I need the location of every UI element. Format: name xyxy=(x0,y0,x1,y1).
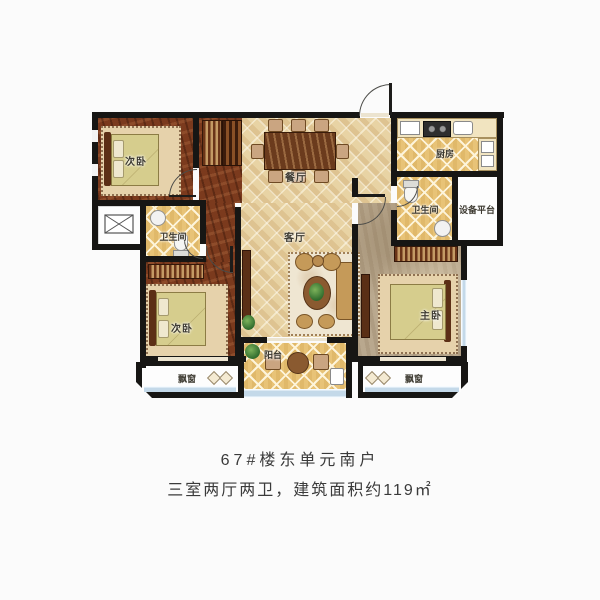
washbasin-icon xyxy=(150,210,166,226)
dining-chair xyxy=(314,119,329,132)
bay-opening-sill xyxy=(380,357,446,361)
wall-window-notch xyxy=(92,130,98,142)
entry-door-leaf xyxy=(389,83,392,115)
washing-machine-icon xyxy=(330,368,344,385)
wall xyxy=(98,200,206,206)
balcony-window xyxy=(244,389,346,398)
armchair xyxy=(322,253,341,271)
dining-chair xyxy=(291,119,306,132)
room-label-bay-window-left: 飘窗 xyxy=(160,372,214,385)
dining-chair xyxy=(336,144,349,159)
wall xyxy=(193,112,199,168)
wall xyxy=(241,337,267,343)
pillow xyxy=(158,298,169,316)
wall xyxy=(140,244,146,368)
floor-plan-page: 次卧 卫生间 次卧 餐厅 客厅 厨房 卫生间 设备平台 主卧 阳台 飘窗 飘窗 … xyxy=(0,0,600,600)
ottoman xyxy=(318,314,335,329)
balcony-chair xyxy=(313,354,329,370)
foyer-cabinet xyxy=(222,120,242,166)
room-label-bedroom-bottom-left: 次卧 xyxy=(155,320,209,335)
dining-chair xyxy=(268,119,283,132)
kitchen-sink-icon xyxy=(453,121,473,135)
bedroom2-door-leaf xyxy=(230,246,233,272)
wall xyxy=(391,177,397,186)
bay-opening-sill xyxy=(158,357,228,361)
room-label-dining-room: 餐厅 xyxy=(269,169,323,184)
room-label-living-room: 客厅 xyxy=(268,229,322,244)
ottoman xyxy=(296,314,313,329)
wall xyxy=(391,240,503,246)
pillow xyxy=(432,288,443,308)
table-plant-icon xyxy=(309,283,324,301)
side-table xyxy=(312,255,324,267)
master-wardrobe xyxy=(394,246,458,262)
entry-door-arc xyxy=(359,84,391,116)
bed-headboard xyxy=(149,290,156,346)
wall xyxy=(391,171,503,177)
tv-cabinet xyxy=(242,250,251,320)
wall xyxy=(327,337,346,343)
master-side-window xyxy=(461,280,467,346)
bay-window-right-glass xyxy=(365,386,459,392)
balcony-opening-sill xyxy=(267,338,327,341)
wall xyxy=(497,112,503,246)
coffee-table xyxy=(303,276,331,310)
master-door-leaf xyxy=(358,194,385,197)
wall-window-notch xyxy=(92,164,98,176)
washbasin-icon xyxy=(434,220,451,237)
stove-icon xyxy=(423,121,451,137)
room-label-master-bedroom: 主卧 xyxy=(404,307,458,322)
kitchen-basin xyxy=(481,141,494,153)
wall xyxy=(390,112,504,118)
bay-window-left-glass xyxy=(144,386,236,392)
room-label-kitchen: 厨房 xyxy=(418,147,472,160)
dining-table xyxy=(264,132,336,170)
wall xyxy=(461,240,467,280)
wall xyxy=(92,244,146,250)
master-dresser xyxy=(361,274,370,338)
caption-unit-details: 三室两厅两卫，建筑面积约119㎡ xyxy=(0,476,600,500)
wall xyxy=(92,112,360,118)
wall xyxy=(391,112,397,177)
room-label-equipment-platform: 设备平台 xyxy=(450,203,504,216)
shoe-cabinet xyxy=(202,120,222,166)
wall xyxy=(346,337,352,398)
room-label-bathroom-right: 卫生间 xyxy=(398,203,452,216)
shaft-x-icon xyxy=(104,214,134,234)
caption-unit-title: 67#楼东单元南户 xyxy=(0,446,600,470)
kitchen-basin xyxy=(481,155,494,167)
plant-icon xyxy=(242,315,255,330)
room-label-balcony: 阳台 xyxy=(246,348,300,361)
room-label-bedroom-top-left: 次卧 xyxy=(109,153,163,168)
wall xyxy=(200,206,206,244)
room-label-bathroom-left: 卫生间 xyxy=(146,230,200,243)
fridge-icon xyxy=(400,121,420,135)
dining-chair xyxy=(251,144,264,159)
bedroom-door-leaf xyxy=(169,195,196,197)
room-label-bay-window-right: 飘窗 xyxy=(387,372,441,385)
wall xyxy=(352,224,358,362)
wardrobe xyxy=(148,264,204,279)
